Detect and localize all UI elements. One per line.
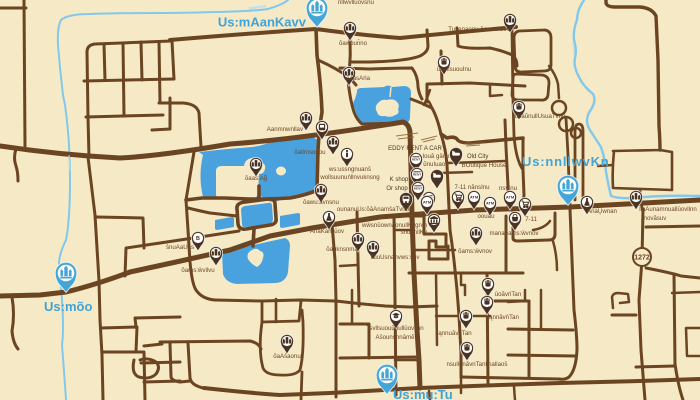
- svg-text:manaŏams:ẅvnov: manaŏams:ẅvnov: [489, 230, 539, 237]
- svg-text:ũnuIuaou: ũnuIuaou: [423, 161, 448, 168]
- svg-text:Aanmnwnllav: Aanmnwnllav: [267, 126, 304, 133]
- svg-text:1272: 1272: [634, 255, 650, 262]
- svg-text:nsvInu: nsvInu: [499, 185, 517, 192]
- svg-text:ŏallmsonou: ŏallmsonou: [294, 149, 325, 156]
- svg-text:Us:mAanKavv: Us:mAanKavv: [218, 15, 307, 30]
- svg-text:ąnnuăvńTan: ąnnuăvńTan: [438, 330, 471, 337]
- svg-text:ūoăvńTan: ūoăvńTan: [495, 291, 521, 298]
- svg-text:Us:mu:Tu: Us:mu:Tu: [393, 387, 453, 400]
- svg-text:AnaŲwnan: AnaŲwnan: [587, 208, 617, 215]
- svg-text:uoaũnullUsuaTvnu: uoaũnullUsuaTvnu: [515, 113, 566, 120]
- svg-text:wollsuunuńllnvuknsng: wollsuunuńllnvuknsng: [319, 174, 379, 181]
- svg-text:ws:ussngnuans̆: ws:ussngnuans̆: [328, 166, 371, 173]
- svg-text:Us:nnllwvKn: Us:nnllwvKn: [522, 154, 610, 169]
- svg-text:ŏaasAńa: ŏaasAńa: [346, 75, 371, 82]
- svg-text:ŏaAs̆aonu: ŏaAs̆aonu: [273, 353, 300, 360]
- svg-text:7-11: 7-11: [525, 216, 537, 223]
- svg-text:nsullgnăvnTanllnallaos̆: nsullgnăvnTanllnallaos̆: [447, 361, 508, 368]
- svg-text:ŏams:ẅvllvu: ŏams:ẅvllvu: [181, 267, 214, 274]
- svg-text:ũnullsuouInu: ũnullsuouInu: [437, 66, 472, 73]
- svg-text:Tusanaonu ŏauuullūov: Tusanaonu ŏauuullūov: [448, 26, 510, 33]
- svg-text:As̆ounsnnămĕ: As̆ounsnnămĕ: [376, 334, 416, 341]
- svg-text:s̆nuAaUns: s̆nuAaUns: [166, 244, 194, 251]
- svg-text:ŏawu:avnsnu: ŏawu:avnsnu: [303, 199, 339, 206]
- svg-text:wẅsnŭownaonullKvgnm: wẅsnŭownaonullKvgnm: [361, 222, 427, 229]
- svg-text:snuńnllKv: snuńnllKv: [401, 229, 428, 236]
- svg-text:llnAunamnuallūovllnn: llnAunamnuallūovllnn: [639, 206, 697, 213]
- svg-text:7-11 nănsInu: 7-11 nănsInu: [454, 184, 489, 191]
- svg-text:Tsvllsuouũnullūovllnn: Tsvllsuouũnullūovllnn: [366, 325, 423, 332]
- svg-text:ŏawoun̆no: ŏawoun̆no: [339, 40, 368, 47]
- svg-text:nllwvlluovsnu: nllwvlluovsnu: [338, 0, 374, 6]
- svg-text:ŏauknsnmą: ŏauknsnmą: [326, 246, 358, 253]
- svg-text:ąnnăvńTan: ąnnăvńTan: [489, 314, 519, 321]
- svg-text:BOutique House: BOutique House: [462, 162, 507, 169]
- svg-text:K shop: K shop: [390, 177, 409, 183]
- svg-text:Us:mõo: Us:mõo: [44, 299, 92, 314]
- svg-text:novăsuv: novăsuv: [644, 215, 668, 222]
- svg-text:ŏaas:Ag̃: ŏaas:Ag̃: [245, 175, 267, 182]
- svg-text:Old City: Old City: [467, 154, 488, 160]
- svg-text:AnaKańllūov: AnaKańllūov: [310, 228, 345, 235]
- svg-text:oouau: oouau: [478, 213, 495, 220]
- svg-text:ounanuUs:ŏăAnamšaTvnu: ounanuUs:ŏăAnamšaTvnu: [337, 206, 409, 213]
- svg-text:ŏams:ẅvnov: ŏams:ẅvnov: [458, 248, 493, 255]
- svg-text:Or shop: Or shop: [386, 186, 408, 192]
- svg-text:Iouă gămı: Iouă gămı: [422, 153, 449, 160]
- svg-text:EDDY RENT A CAR: EDDY RENT A CAR: [388, 146, 442, 152]
- svg-text:llūuUsnanvws:sov: llūuUsnanvws:sov: [371, 254, 421, 261]
